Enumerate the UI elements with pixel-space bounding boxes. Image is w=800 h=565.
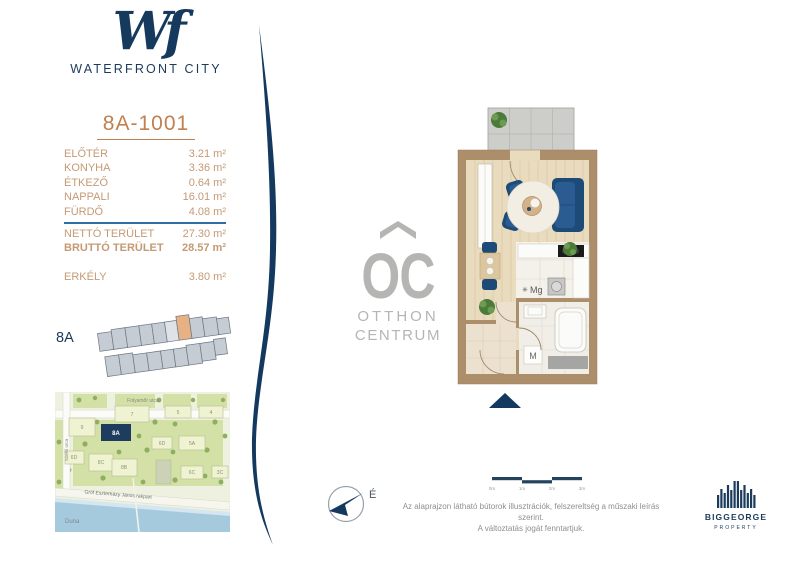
street-top-label: Folyamőr utca <box>127 398 159 404</box>
room-label: ELŐTÉR <box>64 147 108 161</box>
roof-icon <box>380 221 416 239</box>
total-area: 27.30 m² <box>183 227 226 241</box>
disclaimer-line1: Az alaprajzon látható bútorok illusztrác… <box>398 501 664 523</box>
compass-icon: É <box>320 478 390 528</box>
area-row: ÉTKEZŐ0.64 m² <box>64 176 226 190</box>
floor-overview-label: 8A <box>56 330 74 346</box>
room-area: 3.21 m² <box>189 147 226 161</box>
room-label: NAPPALI <box>64 190 110 204</box>
total-label: BRUTTÓ TERÜLET <box>64 241 164 255</box>
netto-row: NETTÓ TERÜLET27.30 m² <box>64 227 226 241</box>
area-row: KONYHA3.36 m² <box>64 161 226 175</box>
floorplan-sheet: Wf WATERFRONT CITY 8A-1001 ELŐTÉR3.21 m²… <box>0 0 800 565</box>
tray <box>531 199 540 208</box>
balcony-row: ERKÉLY3.80 m² <box>64 270 226 284</box>
brand-name: WATERFRONT CITY <box>60 62 232 76</box>
room-area: 16.01 m² <box>183 190 226 204</box>
brutto-row: BRUTTÓ TERÜLET28.57 m² <box>64 241 226 255</box>
area-table: ELŐTÉR3.21 m² KONYHA3.36 m² ÉTKEZŐ0.64 m… <box>64 147 226 284</box>
svg-text:2m: 2m <box>549 486 556 491</box>
apartment-floorplan: ✳ Mg M <box>452 106 602 418</box>
svg-text:8C: 8C <box>98 460 105 466</box>
scale-bar: 0m 1m 2m 3m <box>488 472 592 494</box>
plant-icon <box>479 299 495 315</box>
watermark-line2: CENTRUM <box>355 327 441 344</box>
svg-text:7: 7 <box>131 412 134 418</box>
svg-text:6C: 6C <box>189 470 196 476</box>
developer-name: BIGGEORGE <box>705 512 767 522</box>
area-row: NAPPALI16.01 m² <box>64 190 226 204</box>
river-label: Duna <box>65 519 80 525</box>
unit-id-heading: 8A-1001 <box>60 112 232 140</box>
developer-logo: BIGGEORGE PROPERTY <box>693 464 777 540</box>
area-row: FÜRDŐ4.08 m² <box>64 205 226 219</box>
bath-mat <box>548 356 588 369</box>
watermark-line1: OTTHON <box>357 308 438 325</box>
washer-label: Mg <box>530 285 543 295</box>
washing-machine <box>548 278 565 295</box>
decor-item <box>527 207 531 211</box>
room-area: 4.08 m² <box>189 205 226 219</box>
svg-text:3m: 3m <box>579 486 586 491</box>
unit-id: 8A-1001 <box>97 112 195 140</box>
map-highlight-label: 8A <box>112 431 120 437</box>
dining-set <box>480 242 500 290</box>
svg-text:5A: 5A <box>189 441 196 447</box>
room-label: ÉTKEZŐ <box>64 176 108 190</box>
room-label: ERKÉLY <box>64 270 107 284</box>
room-area: 3.36 m² <box>189 161 226 175</box>
otthon-centrum-watermark: OC OTTHON CENTRUM <box>352 220 444 355</box>
developer-division: PROPERTY <box>714 525 757 531</box>
svg-text:9: 9 <box>81 425 84 431</box>
disclaimer-line2: A változtatás jogát fenntartjuk. <box>398 523 664 534</box>
m-label: M <box>529 351 537 361</box>
north-label: É <box>369 488 376 501</box>
plant-icon <box>563 242 577 256</box>
svg-text:1m: 1m <box>519 486 526 491</box>
washer-note: ✳ <box>522 286 528 294</box>
bathtub <box>555 308 586 352</box>
room-area: 3.80 m² <box>189 270 226 284</box>
brand-monogram-logo: Wf <box>60 4 232 60</box>
disclaimer: Az alaprajzon látható bútorok illusztrác… <box>398 501 664 534</box>
svg-text:4: 4 <box>210 410 213 416</box>
svg-text:6D: 6D <box>71 455 78 461</box>
total-label: NETTÓ TERÜLET <box>64 227 154 241</box>
entrance-arrow-icon <box>489 393 521 408</box>
table-divider <box>64 222 226 224</box>
sink <box>524 305 546 318</box>
balcony-door-opening <box>510 150 540 161</box>
plant-icon <box>491 112 507 128</box>
svg-text:0m: 0m <box>489 486 496 491</box>
floor-overview-mini-plan <box>96 312 238 382</box>
divider-swoosh <box>240 0 300 565</box>
svg-text:3C: 3C <box>217 470 224 476</box>
svg-text:5: 5 <box>177 410 180 416</box>
building-bars-icon <box>717 481 756 508</box>
m-unit: M <box>524 346 542 364</box>
total-area: 28.57 m² <box>182 241 226 255</box>
watermark-monogram: OC <box>361 241 434 312</box>
room-area: 0.64 m² <box>189 176 226 190</box>
street-left-label: Szellő utca <box>64 438 69 461</box>
area-row: ELŐTÉR3.21 m² <box>64 147 226 161</box>
room-label: FÜRDŐ <box>64 205 103 219</box>
site-map: 9 7 5 4 6D 5A 6D 8C 8B 6C 3C 8A Folyamőr… <box>55 392 230 532</box>
closet <box>478 164 492 248</box>
svg-text:6D: 6D <box>159 441 166 447</box>
room-label: KONYHA <box>64 161 110 175</box>
svg-text:8B: 8B <box>121 465 128 471</box>
